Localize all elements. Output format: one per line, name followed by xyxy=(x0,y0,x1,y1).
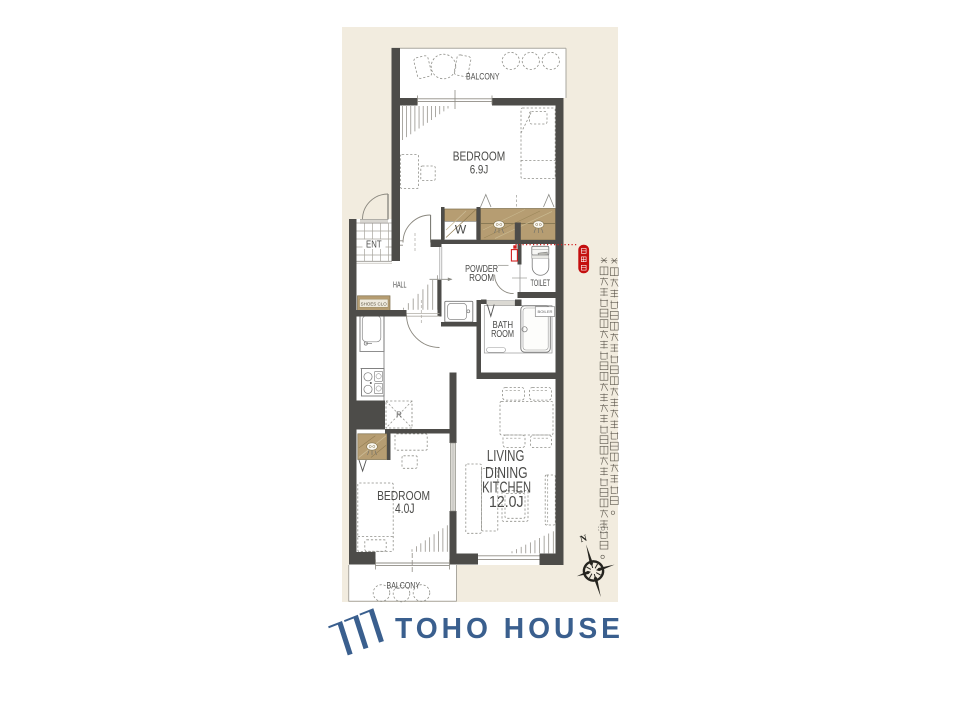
svg-text:BOILER: BOILER xyxy=(538,310,554,314)
svg-text:6.9J: 6.9J xyxy=(470,165,489,177)
svg-text:BALCONY: BALCONY xyxy=(387,580,421,591)
svg-text:ROOM: ROOM xyxy=(469,272,494,284)
svg-text:SHOES CLO: SHOES CLO xyxy=(361,301,388,306)
svg-text:4.0J: 4.0J xyxy=(395,501,415,516)
svg-text:ENT: ENT xyxy=(366,239,382,250)
svg-text:W: W xyxy=(455,223,467,237)
svg-text:12.0J: 12.0J xyxy=(489,494,524,511)
svg-text:R: R xyxy=(396,411,402,420)
svg-text:TOHO HOUSE: TOHO HOUSE xyxy=(395,613,624,645)
svg-text:HALL: HALL xyxy=(393,279,407,289)
svg-text:BEDROOM: BEDROOM xyxy=(453,148,506,163)
svg-text:BALCONY: BALCONY xyxy=(466,71,500,82)
svg-text:TOILET: TOILET xyxy=(531,278,551,288)
svg-text:LIVING: LIVING xyxy=(487,448,525,465)
svg-text:ROOM: ROOM xyxy=(491,329,514,340)
